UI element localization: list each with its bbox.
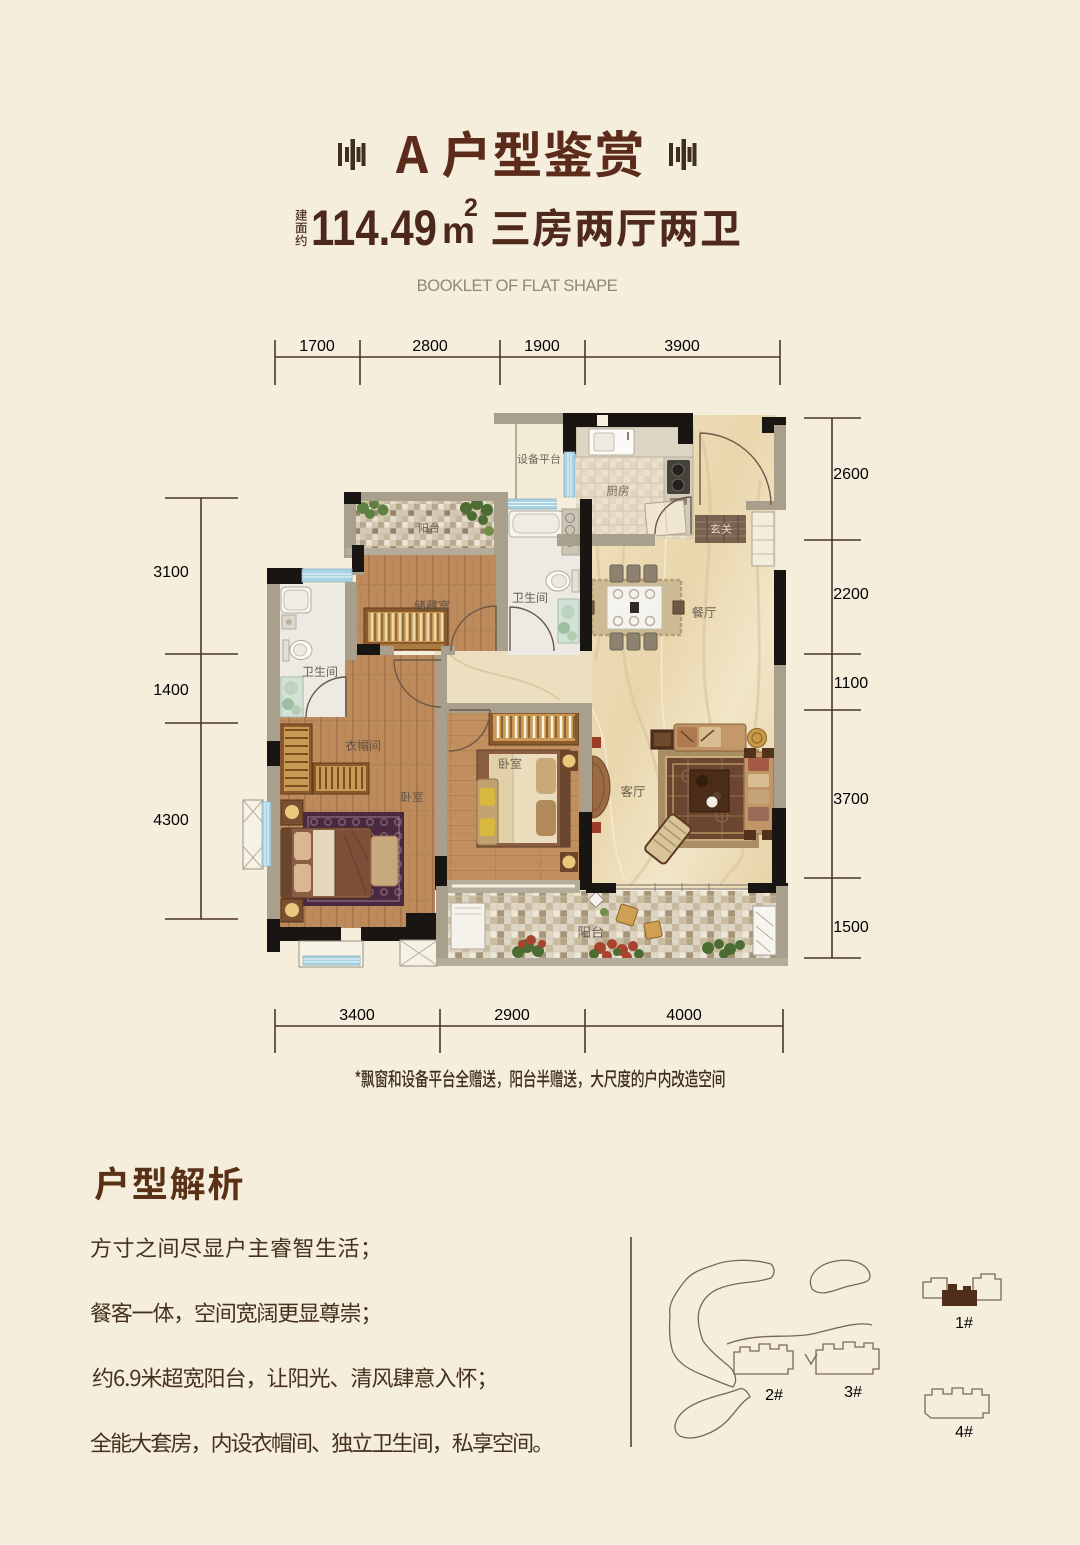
svg-text:3#: 3# (844, 1384, 862, 1401)
svg-text:4000: 4000 (666, 1007, 702, 1024)
svg-text:4#: 4# (955, 1424, 973, 1441)
svg-text:2800: 2800 (412, 338, 448, 355)
svg-text:1500: 1500 (833, 919, 869, 936)
svg-text:1700: 1700 (299, 338, 335, 355)
svg-text:2900: 2900 (494, 1007, 530, 1024)
svg-text:2: 2 (464, 194, 478, 222)
svg-text:2600: 2600 (833, 466, 869, 483)
svg-text:3900: 3900 (664, 338, 700, 355)
svg-text:3400: 3400 (339, 1007, 375, 1024)
svg-text:2#: 2# (765, 1387, 783, 1404)
svg-text:1900: 1900 (524, 338, 560, 355)
svg-text:114.49: 114.49 (311, 200, 437, 256)
svg-text:2200: 2200 (833, 586, 869, 603)
svg-text:1100: 1100 (834, 675, 869, 692)
svg-text:3100: 3100 (153, 564, 189, 581)
svg-text:3700: 3700 (833, 791, 869, 808)
svg-text:1400: 1400 (153, 682, 189, 699)
svg-text:1#: 1# (955, 1315, 973, 1332)
svg-text:BOOKLET OF FLAT SHAPE: BOOKLET OF FLAT SHAPE (417, 277, 618, 295)
svg-text:4300: 4300 (153, 812, 189, 829)
